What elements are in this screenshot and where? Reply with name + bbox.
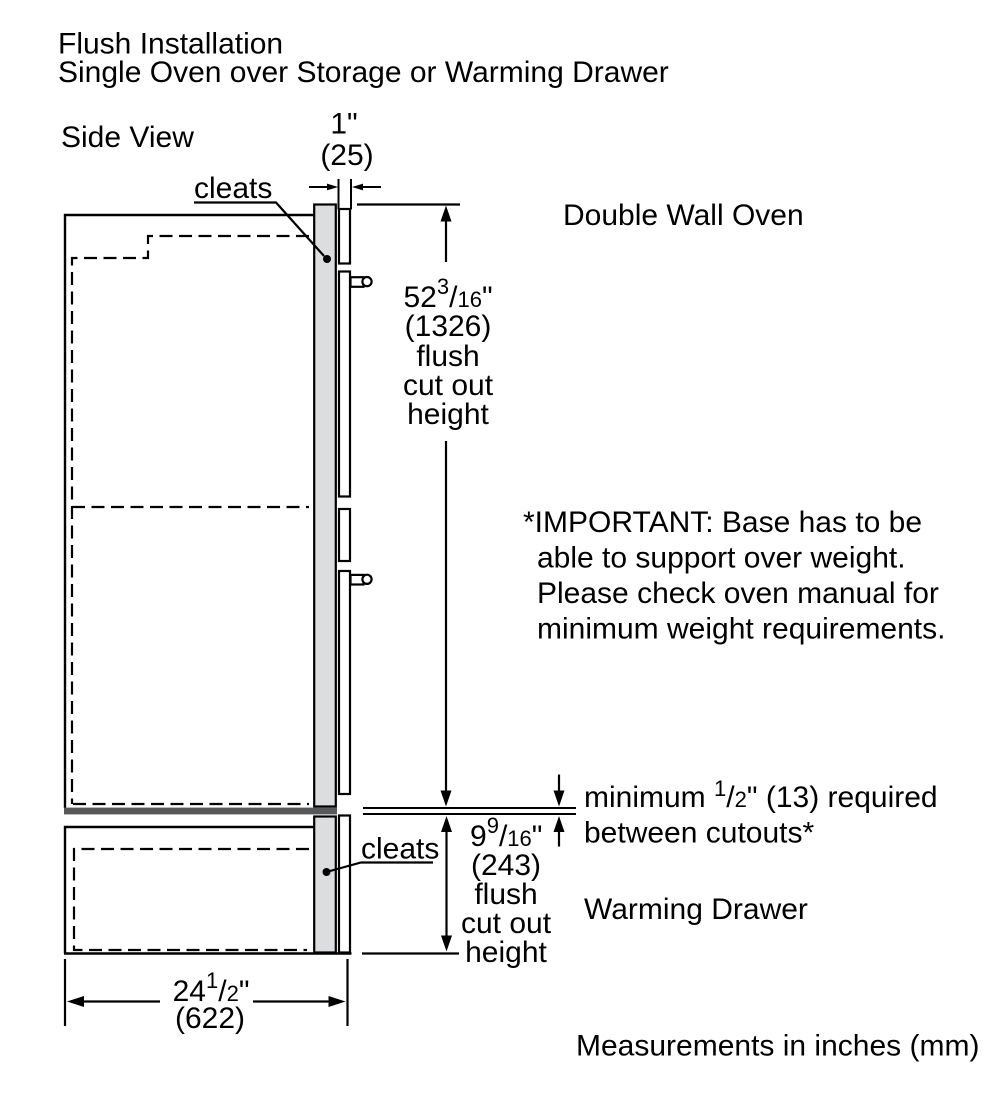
svg-text:between cutouts*: between cutouts* (584, 817, 814, 850)
svg-text:(622): (622) (175, 1002, 245, 1035)
svg-text:Double Wall Oven: Double Wall Oven (563, 199, 804, 232)
svg-text:Warming Drawer: Warming Drawer (584, 893, 808, 926)
svg-text:height: height (465, 936, 547, 969)
svg-text:99/16": 99/16" (470, 813, 542, 853)
svg-text:height: height (407, 398, 489, 431)
svg-text:(1326): (1326) (405, 310, 492, 343)
svg-text:Measurements in inches (mm): Measurements in inches (mm) (576, 1030, 979, 1063)
svg-text:(25): (25) (320, 139, 373, 172)
svg-text:minimum weight requirements.: minimum weight requirements. (537, 613, 945, 646)
svg-text:Side View: Side View (61, 121, 194, 154)
svg-text:1": 1" (330, 108, 357, 141)
svg-text:523/16": 523/16" (404, 274, 493, 314)
svg-text:minimum 1/2" (13) required: minimum 1/2" (13) required (584, 776, 938, 814)
svg-text:able to support over weight.: able to support over weight. (537, 542, 906, 575)
svg-text:cleats: cleats (361, 833, 439, 866)
svg-text:Single Oven over Storage or Wa: Single Oven over Storage or Warming Draw… (58, 56, 669, 89)
svg-text:cleats: cleats (194, 172, 272, 205)
svg-text:*IMPORTANT: Base has to be: *IMPORTANT: Base has to be (523, 506, 922, 539)
svg-text:Please check oven manual for: Please check oven manual for (537, 577, 939, 610)
